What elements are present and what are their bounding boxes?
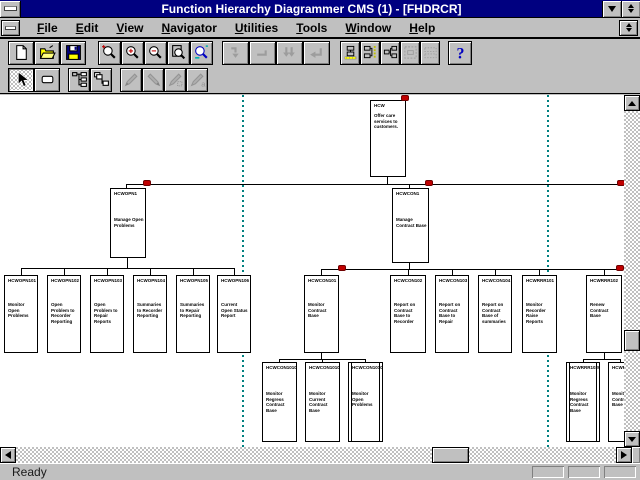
restore-button[interactable] (621, 1, 640, 17)
svg-text:a: a (201, 79, 206, 88)
expand-hierarchy-button[interactable] (68, 68, 90, 92)
function-description: Monitor Regress Contract Base (570, 391, 598, 414)
function-description: Monitor Recorder Raise Reports (526, 302, 555, 325)
nav-level-button[interactable] (249, 41, 276, 65)
connector-line (21, 268, 235, 269)
layout-ruler-v-icon (363, 45, 378, 60)
page-boundary-guide (547, 95, 549, 447)
save-icon (65, 44, 82, 61)
title-bar: Function Hierarchy Diagrammer CMS (1) - … (0, 0, 640, 18)
scroll-right-icon (621, 451, 627, 459)
function-label: HCWRRR102 (590, 278, 620, 283)
function-box-HCWRRR10201[interactable]: HCWRRR10201Monitor Regress Contract Base (566, 362, 600, 442)
document-restore-up-icon (626, 23, 632, 27)
function-label: HCWOPN106 (221, 278, 249, 283)
layout-compact-icon (383, 45, 398, 60)
function-box-HCWCON101[interactable]: HCWCON101Monitor Contract Base (304, 275, 339, 353)
layout-compact-button[interactable] (380, 41, 400, 65)
layout-horizontal-button[interactable] (340, 41, 360, 65)
pen1-icon (123, 71, 140, 88)
scroll-left-icon (5, 451, 11, 459)
function-box-HCWOPN105[interactable]: HCWOPN105Summaries to Repair Reporting (176, 275, 210, 353)
nav-corner-icon (308, 44, 325, 61)
zoom-out-button[interactable] (144, 41, 167, 65)
menu-tools[interactable]: Tools (287, 20, 336, 36)
window-title: Function Hierarchy Diagrammer CMS (1) - … (21, 2, 602, 16)
elision-marker-dot (143, 180, 151, 186)
function-box-HCWOPN102[interactable]: HCWOPN102Open Problem to Recorder Report… (47, 275, 81, 353)
pen4-icon: a (189, 71, 206, 88)
nav-level-icon (254, 44, 271, 61)
main-toolbar: ? (0, 39, 640, 66)
document-restore-down-icon (626, 28, 632, 32)
help-icon: ? (452, 44, 469, 61)
function-label: HCWOPN105 (180, 278, 208, 283)
function-box-HCWCON103[interactable]: HCWCON103Report on Contract Base to Repa… (435, 275, 469, 353)
function-description: Summaries to Repair Reporting (180, 302, 208, 319)
toolbar-group (222, 41, 330, 65)
edit-function-button[interactable] (120, 68, 142, 92)
toolbar-group: ? (448, 41, 472, 65)
horizontal-scroll-thumb[interactable] (432, 447, 469, 463)
zoom-out-icon (147, 44, 164, 61)
resequence-button[interactable] (420, 41, 440, 65)
app-window: { "window": { "title": "Function Hierarc… (0, 0, 640, 480)
function-box-HCWCON102[interactable]: HCWCON102Report on Contract Base to Reco… (390, 275, 426, 353)
function-box-HCW[interactable]: HCWOffer care services to customers. (370, 100, 406, 177)
function-label: HCWRRR10201 (570, 365, 598, 370)
nav-expand-button[interactable] (276, 41, 303, 65)
function-description: Current Open Status Report (221, 302, 249, 319)
minimize-icon (608, 6, 616, 12)
new-icon (13, 44, 30, 61)
connector-line (583, 359, 621, 360)
scroll-down-button[interactable] (624, 431, 640, 447)
elision-marker-dot (401, 95, 409, 101)
function-label: HCWRRR101 (526, 278, 555, 283)
menu-navigator[interactable]: Navigator (153, 20, 226, 36)
diagram-canvas[interactable]: HCWOffer care services to customers.HCWO… (0, 95, 640, 447)
function-label: HCWCON103 (439, 278, 467, 283)
pattern-icon (423, 45, 438, 60)
function-label: HCWOPN101 (8, 278, 36, 283)
function-box-HCWCON10102[interactable]: HCWCON10102Monitor Current Contract Base (305, 362, 340, 442)
nav-return-button[interactable] (303, 41, 330, 65)
toolbar-group (98, 41, 213, 65)
function-description: Report on Contract Base of summaries (482, 302, 510, 325)
function-box-HCWCON104[interactable]: HCWCON104Report on Contract Base of summ… (478, 275, 512, 353)
function-label: HCWCON10101 (266, 365, 295, 370)
zoom-page-icon (170, 44, 187, 61)
menu-edit[interactable]: Edit (67, 20, 108, 36)
edit-color-button[interactable] (164, 68, 186, 92)
scroll-up-button[interactable] (624, 95, 640, 111)
horizontal-scrollbar[interactable] (0, 447, 632, 463)
elision-marker-dot (616, 265, 624, 271)
layout-ruler-h-icon (343, 45, 358, 60)
connector-line (321, 269, 622, 270)
function-box-HCWOPN103[interactable]: HCWOPN103Open Problem to Repair Reports (90, 275, 124, 353)
minimize-button[interactable] (602, 1, 621, 17)
scroll-down-icon (628, 437, 636, 442)
menu-utilities[interactable]: Utilities (226, 20, 287, 36)
restore-down-icon (628, 9, 634, 13)
open-icon (39, 44, 56, 61)
nav-double-icon (281, 44, 298, 61)
function-description: Monitor Current Contract Base (309, 391, 338, 414)
document-restore-button[interactable] (619, 20, 638, 36)
zoom-page-button[interactable] (167, 41, 190, 65)
frame-icon (403, 45, 418, 60)
function-box-HCWCON10103[interactable]: HCWCON10103Monitor Open Problems (348, 362, 383, 442)
function-description: Open Problem to Recorder Reporting (51, 302, 79, 325)
function-label: HCWCON10102 (309, 365, 338, 370)
function-label: HCWCON101 (308, 278, 337, 283)
elision-marker-dot (425, 180, 433, 186)
function-box-HCWOPN1[interactable]: HCWOPN1Manage Open Problems (110, 188, 146, 258)
function-label: HCWOPN1 (114, 191, 144, 196)
function-description: Open Problem to Repair Reports (94, 302, 122, 325)
function-description: Monitor Regress Contract Base (266, 391, 295, 414)
drawing-toolbar: a (0, 66, 640, 94)
zoom-icon (101, 44, 118, 61)
system-menu-button[interactable] (0, 1, 21, 17)
function-label: HCWCON102 (394, 278, 424, 283)
function-box-HCWOPN104[interactable]: HCWOPN104Summaries to Recorder Reporting (133, 275, 167, 353)
toolbar-group: a (120, 68, 208, 92)
function-label: HCWCON1 (396, 191, 427, 196)
selection-frame-button[interactable] (400, 41, 420, 65)
edit-label-button[interactable] (142, 68, 164, 92)
menu-items: FileEditViewNavigatorUtilitiesToolsWindo… (20, 20, 619, 36)
menu-file[interactable]: File (28, 20, 67, 36)
page-boundary-guide (242, 95, 244, 447)
function-description: Renew Contract Base (590, 302, 620, 319)
open-button[interactable] (34, 41, 60, 65)
function-description: Manage Open Problems (114, 217, 144, 228)
function-label: HCW (374, 103, 404, 108)
function-label: HCWOPN102 (51, 278, 79, 283)
menu-help[interactable]: Help (400, 20, 444, 36)
zoom-in-icon (124, 44, 141, 61)
function-description: Monitor Contract Base (308, 302, 337, 319)
scroll-left-button[interactable] (0, 447, 16, 463)
vertical-scroll-thumb[interactable] (624, 330, 640, 351)
vertical-scrollbar[interactable] (624, 95, 640, 447)
status-panel-1 (532, 466, 564, 478)
hier-collapse-icon (93, 71, 110, 88)
nav-down-icon (227, 44, 244, 61)
zoom-fit-icon (193, 44, 210, 61)
elision-marker-dot (338, 265, 346, 271)
edit-font-button[interactable]: a (186, 68, 208, 92)
function-description: Report on Contract Base to Repair (439, 302, 467, 325)
function-description: Offer care services to customers. (374, 113, 404, 130)
zoom-normal-button[interactable] (98, 41, 121, 65)
zoom-fit-button[interactable] (190, 41, 213, 65)
connector-line (126, 184, 640, 185)
document-system-menu-icon (5, 26, 16, 30)
box-tool-icon (39, 71, 56, 88)
function-description: Report on Contract Base to Recorder (394, 302, 424, 325)
status-panel-3 (604, 466, 636, 478)
menu-window[interactable]: Window (336, 20, 400, 36)
function-box-HCWRRR102[interactable]: HCWRRR102Renew Contract Base (586, 275, 622, 353)
pen3-icon (167, 71, 184, 88)
document-system-menu-button[interactable] (1, 20, 20, 36)
function-description: Manage Contract Base (396, 217, 427, 228)
scrollbar-corner (632, 447, 640, 463)
svg-text:?: ? (456, 45, 464, 61)
toolbar-group (68, 68, 112, 92)
scroll-right-button[interactable] (616, 447, 632, 463)
toolbar-group (340, 41, 440, 65)
status-bar: Ready (0, 463, 640, 480)
system-menu-icon (4, 6, 17, 11)
function-box-HCWCON1[interactable]: HCWCON1Manage Contract Base (392, 188, 429, 263)
toolbar-group (8, 41, 86, 65)
function-box-HCWCON10101[interactable]: HCWCON10101Monitor Regress Contract Base (262, 362, 297, 442)
function-box-HCWOPN106[interactable]: HCWOPN106Current Open Status Report (217, 275, 251, 353)
function-box-HCWOPN101[interactable]: HCWOPN101Monitor Open Problems (4, 275, 38, 353)
status-panel-2 (568, 466, 600, 478)
nav-down-button[interactable] (222, 41, 249, 65)
restore-up-icon (628, 4, 634, 8)
function-label: HCWOPN103 (94, 278, 122, 283)
help-button[interactable]: ? (448, 41, 472, 65)
function-description: Summaries to Recorder Reporting (137, 302, 165, 319)
new-button[interactable] (8, 41, 34, 65)
menu-view[interactable]: View (107, 20, 152, 36)
collapse-hierarchy-button[interactable] (90, 68, 112, 92)
function-description: Monitor Open Problems (352, 391, 381, 408)
toolbar-group (8, 68, 60, 92)
menu-bar: FileEditViewNavigatorUtilitiesToolsWindo… (0, 18, 640, 39)
function-description: Monitor Open Problems (8, 302, 36, 319)
scroll-up-icon (628, 101, 636, 106)
status-text: Ready (0, 465, 532, 479)
pen2-icon (145, 71, 162, 88)
function-box-HCWRRR101[interactable]: HCWRRR101Monitor Recorder Raise Reports (522, 275, 557, 353)
function-label: HCWOPN104 (137, 278, 165, 283)
hier-expand-icon (71, 71, 88, 88)
select-tool-button[interactable] (8, 68, 34, 92)
zoom-in-button[interactable] (121, 41, 144, 65)
function-label: HCWCON104 (482, 278, 510, 283)
layout-vertical-button[interactable] (360, 41, 380, 65)
function-box-tool-button[interactable] (34, 68, 60, 92)
save-button[interactable] (60, 41, 86, 65)
function-label: HCWCON10103 (352, 365, 381, 370)
pointer-icon (13, 71, 30, 88)
